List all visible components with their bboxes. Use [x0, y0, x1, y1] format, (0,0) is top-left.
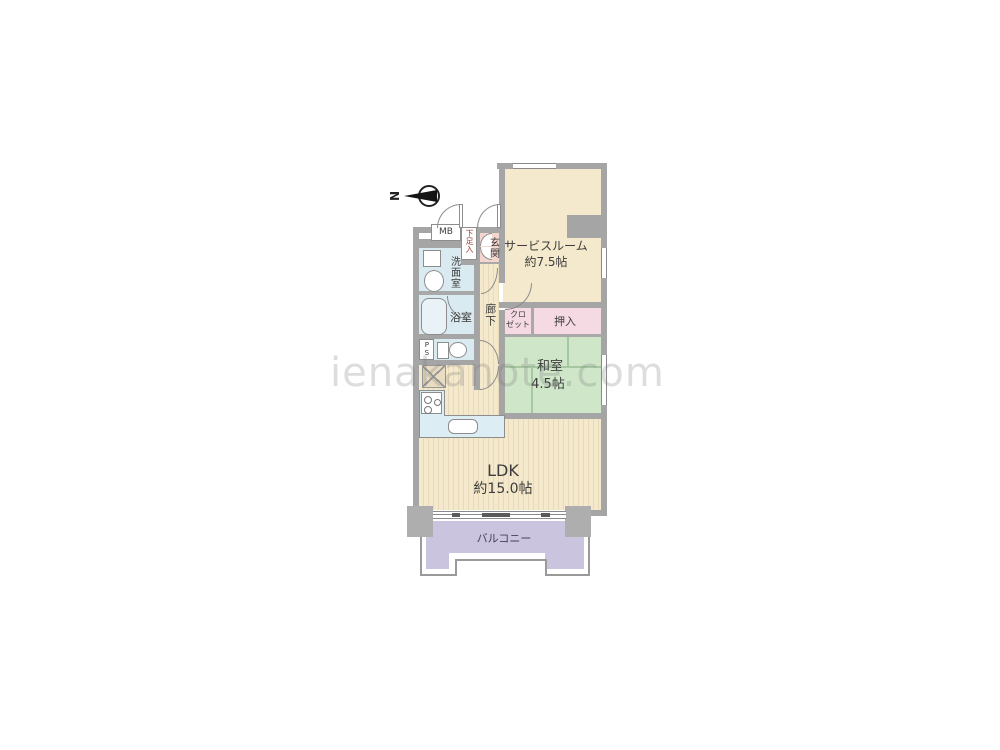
mb-door-leaf	[459, 204, 463, 228]
service-room-name: サービスルーム	[496, 239, 596, 254]
balcony-pillar-right	[565, 506, 591, 537]
shoebox-label: 下足入	[464, 229, 474, 253]
basin-icon	[424, 270, 444, 292]
service-room-size: 約7.5帖	[496, 255, 596, 270]
balcony-pillar-left	[407, 506, 433, 537]
wall-senmen-bath-divider	[419, 291, 474, 295]
ldk-name: LDK	[453, 461, 553, 481]
balcony-rail-bottom-left	[420, 574, 456, 576]
wall-washitsu-bottom	[499, 413, 607, 419]
window-sash-center	[482, 513, 510, 517]
closet-name: クロ ゼット	[504, 310, 532, 331]
genkan-name: 玄関	[486, 234, 499, 262]
closet-name-line2: ゼット	[504, 320, 532, 330]
entrance-door-leaf	[497, 204, 501, 228]
watermark-text: ienakanote.com	[330, 350, 630, 396]
balcony-rail-step-left	[455, 559, 457, 576]
compass-north-label: N	[388, 191, 402, 201]
window-sash-left	[452, 513, 460, 517]
stove-burner-2	[424, 406, 432, 414]
sink-icon	[448, 419, 478, 434]
balcony-floor-right-leg	[545, 553, 584, 569]
wall-service-notch	[567, 215, 607, 238]
oshiire-name: 押入	[534, 315, 596, 329]
bath-name: 浴室	[441, 311, 481, 325]
balcony-name: バルコニー	[454, 532, 554, 546]
corridor-name: 廊下	[483, 297, 497, 333]
stove-burner-1	[424, 396, 432, 404]
wall-closet-bottom-line	[505, 334, 601, 337]
washer-icon	[423, 250, 441, 267]
window-sash-right	[541, 513, 550, 517]
window-service-top	[513, 163, 556, 169]
mb-door-arc	[437, 204, 461, 228]
stove-burner-3	[434, 399, 441, 406]
window-service-right	[601, 248, 607, 278]
floor-plan: MB 下足入 PS サービスルーム 約7.5帖 和室 4.5帖 LDK 約15.…	[0, 0, 1000, 750]
balcony-floor-left-leg	[426, 553, 449, 569]
balcony-rail-bottom-right	[545, 574, 590, 576]
balcony-rail-center	[455, 559, 547, 561]
shoebox-box: 下足入	[461, 227, 477, 260]
senmen-name: 洗面室	[447, 253, 460, 291]
closet-name-line1: クロ	[504, 310, 532, 320]
north-arrow-icon	[404, 190, 437, 202]
ldk-size: 約15.0帖	[453, 481, 553, 499]
